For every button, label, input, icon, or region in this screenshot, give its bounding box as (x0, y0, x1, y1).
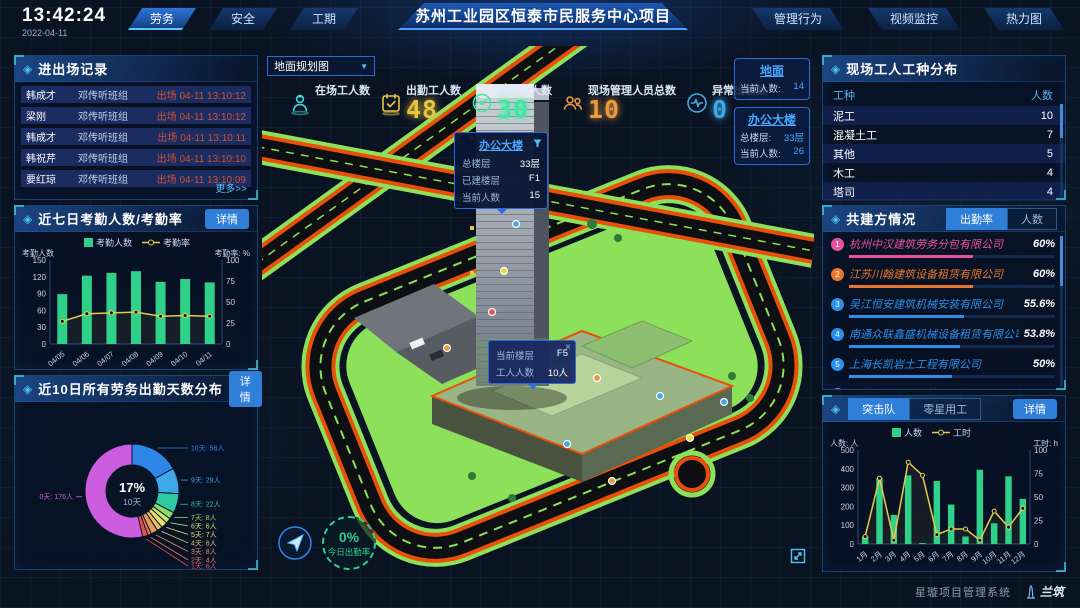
svg-text:2月: 2月 (869, 549, 884, 563)
entry-record-row: 韩成才邓传听班组出场 04-11 13:10:11 (21, 128, 251, 145)
worker-type-count: 4 (1023, 186, 1053, 198)
table-row: 其他5 (823, 144, 1065, 163)
svg-text:04/08: 04/08 (120, 349, 140, 368)
diamond-icon: ◈ (831, 212, 840, 226)
building-badge: 办公大楼总楼层:33层当前人数:26 (734, 107, 810, 165)
partner-progress-fill (849, 345, 960, 348)
nav-tab[interactable]: 工期 (290, 8, 358, 30)
entry-worker-name: 韩成才 (26, 129, 78, 144)
distribution-detail-button[interactable]: 详情 (229, 371, 262, 407)
squad-detail-button[interactable]: 详情 (1013, 399, 1057, 419)
tooltip-row: 工人人数10人 (496, 365, 568, 379)
worker-types-table-header: 工种 人数 (823, 82, 1065, 106)
badge-row-value: 26 (793, 146, 804, 160)
svg-text:6天: 6人: 6天: 6人 (191, 522, 217, 530)
scrollbar-thumb[interactable] (1060, 236, 1063, 286)
nav-tab[interactable]: 热力图 (984, 8, 1064, 30)
floor-tooltip-rows: 当前楼层F5工人人数10人 (496, 348, 568, 379)
scrollbar-thumb[interactable] (1060, 104, 1063, 138)
svg-text:60: 60 (37, 306, 46, 315)
svg-text:150: 150 (33, 256, 47, 265)
svg-text:04/05: 04/05 (46, 349, 66, 368)
entry-team-name: 邓传听班组 (78, 171, 157, 186)
nav-tabs-left: 劳务安全工期 (128, 8, 358, 30)
nav-tabs-right: 管理行为视频监控热力图 (752, 8, 1064, 30)
calendar-icon (379, 90, 403, 116)
partners-panel: ◈ 共建方情况 出勤率人数 1杭州中汉建筑劳务分包有限公司60%2江苏川翰建筑设… (822, 205, 1066, 390)
diamond-icon: ◈ (23, 212, 32, 226)
partner-progress-track (849, 285, 1055, 288)
badge-row-value: 14 (793, 81, 804, 95)
view-selector-value: 地面规划图 (274, 58, 329, 74)
table-row: 木工4 (823, 163, 1065, 182)
svg-text:8月: 8月 (955, 549, 970, 563)
worker-type-name: 混凝土工 (833, 127, 1023, 143)
partner-item[interactable]: 1杭州中汉建筑劳务分包有限公司60% (831, 236, 1055, 264)
partner-row: 4南通众联鑫盛机械设备租赁有限公司53.8% (831, 326, 1055, 342)
svg-text:4月: 4月 (898, 549, 913, 563)
distribution-donut-chart: 10天: 56人9天: 29人8天: 22人7天: 8人6天: 6人5天: 7人… (20, 403, 252, 569)
partner-rank-badge: 6 (831, 388, 844, 390)
entry-event-time: 出场 04-11 13:10:10 (157, 150, 246, 165)
site-stats-row: 在场工人数出勤工人数48现场工人数30现场管理人员总数10异常出勤数0 (288, 82, 767, 122)
svg-text:0: 0 (1034, 540, 1039, 549)
svg-text:0: 0 (42, 340, 47, 349)
tooltip-row: 当前人数15 (462, 190, 540, 204)
site-stat: 现场工人数30 (470, 82, 552, 122)
svg-text:考勤率: 考勤率 (163, 237, 190, 248)
entry-team-name: 邓传听班组 (78, 129, 157, 144)
nav-tab[interactable]: 安全 (209, 8, 277, 30)
entry-team-name: 邓传听班组 (78, 87, 157, 102)
building-badge-row: 当前人数:26 (740, 146, 804, 160)
column-count: 人数 (1023, 87, 1053, 103)
stat-value: 48 (406, 98, 461, 122)
entry-worker-name: 韩成才 (26, 87, 78, 102)
partners-tab[interactable]: 出勤率 (946, 208, 1007, 230)
brand-logo: 兰筑 (1025, 583, 1064, 600)
svg-text:6月: 6月 (926, 549, 941, 563)
partners-list: 1杭州中汉建筑劳务分包有限公司60%2江苏川翰建筑设备租赁有限公司60%3吴江恒… (823, 232, 1065, 389)
diamond-icon: ◈ (831, 402, 840, 416)
brand-logo-text: 兰筑 (1040, 583, 1064, 600)
svg-text:10天: 56人: 10天: 56人 (191, 445, 224, 453)
building-badge-row: 当前人数:14 (740, 81, 804, 95)
building-badges: 地面当前人数:14办公大楼总楼层:33层当前人数:26 (734, 58, 810, 165)
tower-tooltip-rows: 总楼层33层已建楼层F1当前人数15 (462, 156, 540, 204)
svg-text:0: 0 (226, 340, 231, 349)
entry-record-row: 梁刚邓传听班组出场 04-11 13:10:12 (21, 107, 251, 124)
today-attendance-rate-badge: 0% 今日出勤率 (322, 516, 376, 570)
svg-text:人数: 人数 (904, 427, 922, 438)
diamond-icon: ◈ (23, 382, 32, 396)
svg-text:100: 100 (226, 256, 240, 265)
partner-row: 2江苏川翰建筑设备租赁有限公司60% (831, 266, 1055, 282)
badge-row-value: 33层 (784, 130, 804, 144)
page-title: 苏州工业园区恒泰市民服务中心项目 (398, 3, 688, 30)
more-link[interactable]: 更多>> (215, 180, 247, 195)
svg-text:100: 100 (1034, 446, 1048, 455)
svg-text:工时: 工时 (953, 427, 971, 438)
svg-text:7天: 8人: 7天: 8人 (191, 514, 217, 522)
partner-value: 53.8% (1024, 328, 1055, 340)
svg-text:5天: 7人: 5天: 7人 (191, 531, 217, 539)
floor-tooltip: × 当前楼层F5工人人数10人 (488, 340, 576, 384)
table-row: 塔司4 (823, 182, 1065, 201)
diamond-icon: ◈ (831, 62, 840, 76)
partners-header: ◈ 共建方情况 出勤率人数 (823, 206, 1065, 232)
svg-text:1天: 6人: 1天: 6人 (191, 563, 217, 570)
partner-progress-track (849, 345, 1055, 348)
tooltip-row-value: 33层 (520, 156, 540, 170)
svg-text:120: 120 (33, 273, 47, 282)
entry-worker-name: 要红琼 (26, 171, 78, 186)
partner-row: 6江苏浩诒建筑安装工程有限公司35.4% (831, 386, 1055, 389)
clock: 13:42:24 2022-04-11 (22, 5, 106, 38)
worker-type-name: 泥工 (833, 108, 1023, 124)
worker-type-count: 5 (1023, 148, 1053, 160)
partners-tab[interactable]: 人数 (1007, 208, 1057, 230)
table-row: 混凝土工7 (823, 125, 1065, 144)
tooltip-row-label: 工人人数 (496, 365, 534, 379)
tooltip-row-value: 15 (529, 190, 540, 204)
people-icon (561, 90, 585, 116)
entry-exit-title: 进出场记录 (38, 59, 108, 78)
tooltip-row: 总楼层33层 (462, 156, 540, 170)
entry-exit-panel: ◈ 进出场记录 韩成才邓传听班组出场 04-11 13:10:12梁刚邓传听班组… (14, 55, 258, 200)
svg-text:50: 50 (1034, 493, 1043, 502)
partner-progress-fill (849, 285, 973, 288)
svg-text:200: 200 (841, 502, 855, 511)
partner-rank-badge: 3 (831, 298, 844, 311)
attendance-panel: ◈ 近七日考勤人数/考勤率 详情 考勤人数考勤率考勤人数考勤率: %030609… (14, 205, 258, 370)
partner-progress-track (849, 255, 1055, 258)
attendance-rate-percent: 0% (339, 529, 359, 545)
svg-text:4天: 6人: 4天: 6人 (191, 539, 217, 547)
partner-progress-fill (849, 375, 952, 378)
svg-text:5月: 5月 (912, 549, 927, 563)
tower-tooltip: 办公大楼 总楼层33层已建楼层F1当前人数15 (454, 132, 548, 209)
table-row: 泥工10 (823, 106, 1065, 125)
stat-text: 在场工人数 (315, 82, 370, 122)
svg-text:30: 30 (37, 323, 46, 332)
entry-team-name: 邓传听班组 (78, 108, 157, 123)
partner-progress-track (849, 375, 1055, 378)
view-selector-dropdown[interactable]: 地面规划图 ▼ (267, 56, 375, 76)
svg-text:400: 400 (841, 465, 855, 474)
stat-text: 现场工人数30 (497, 82, 552, 122)
entry-event-time: 出场 04-11 13:10:12 (157, 87, 246, 102)
stat-value: 30 (497, 98, 552, 122)
svg-text:50: 50 (226, 298, 235, 307)
svg-text:90: 90 (37, 290, 46, 299)
svg-text:100: 100 (841, 521, 855, 530)
svg-text:12月: 12月 (1009, 549, 1027, 566)
partner-progress-track (849, 315, 1055, 318)
building-badge: 地面当前人数:14 (734, 58, 810, 100)
entry-team-name: 邓传听班组 (78, 150, 157, 165)
entry-record-row: 韩祝芹邓传听班组出场 04-11 13:10:10 (21, 149, 251, 166)
worker-type-count: 10 (1023, 110, 1053, 122)
svg-text:8天: 22人: 8天: 22人 (191, 501, 221, 509)
svg-text:75: 75 (226, 277, 235, 286)
attendance-detail-button[interactable]: 详情 (205, 209, 249, 229)
tooltip-row-value: F1 (529, 173, 540, 187)
svg-text:7月: 7月 (941, 549, 956, 563)
squad-chart: 人数工时人数: 人工时: h01002003004005000255075100… (828, 424, 1060, 570)
distribution-panel: ◈ 近10日所有劳务出勤天数分布 详情 10天: 56人9天: 29人8天: 2… (14, 375, 258, 570)
svg-text:9天: 29人: 9天: 29人 (191, 477, 221, 485)
partner-item[interactable]: 6江苏浩诒建筑安装工程有限公司35.4% (831, 386, 1055, 389)
partner-value: 35.4% (1024, 388, 1055, 389)
tooltip-row: 当前楼层F5 (496, 348, 568, 362)
worker-types-title: 现场工人工种分布 (846, 59, 958, 78)
tooltip-row-value: 10人 (548, 365, 568, 379)
partner-value: 60% (1033, 238, 1055, 250)
site-view-container: 地面规划图 ▼ 在场工人数出勤工人数48现场工人数30现场管理人员总数10异常出… (262, 46, 814, 574)
entry-worker-name: 梁刚 (26, 108, 78, 123)
partner-row: 1杭州中汉建筑劳务分包有限公司60% (831, 236, 1055, 252)
system-name: 星璇项目管理系统 (915, 584, 1011, 600)
worker-type-count: 7 (1023, 129, 1053, 141)
partner-value: 55.6% (1024, 298, 1055, 310)
svg-text:04/10: 04/10 (169, 349, 189, 368)
entry-event-time: 出场 04-11 13:10:11 (157, 129, 246, 144)
tooltip-row-label: 已建楼层 (462, 173, 500, 187)
partner-rank-badge: 4 (831, 328, 844, 341)
entry-worker-name: 韩祝芹 (26, 150, 78, 165)
nav-tab[interactable]: 管理行为 (752, 8, 844, 30)
nav-tab[interactable]: 劳务 (128, 8, 196, 30)
attendance-chart: 考勤人数考勤率考勤人数考勤率: %03060901201500255075100… (20, 234, 252, 370)
partner-progress-fill (849, 315, 964, 318)
stat-text: 出勤工人数48 (406, 82, 461, 122)
building-badge-title[interactable]: 地面 (740, 62, 804, 79)
squad-header: ◈ 突击队零星用工 详情 (823, 396, 1065, 422)
partner-name: 江苏浩诒建筑安装工程有限公司 (849, 386, 1019, 389)
top-header: 13:42:24 2022-04-11 劳务安全工期 苏州工业园区恒泰市民服务中… (0, 0, 1080, 40)
current-date: 2022-04-11 (22, 28, 106, 38)
svg-text:3天: 8人: 3天: 8人 (191, 548, 217, 556)
site-stat: 出勤工人数48 (379, 82, 461, 122)
entry-event-time: 出场 04-11 13:10:12 (157, 108, 246, 123)
partners-tabs: 出勤率人数 (946, 208, 1057, 230)
partner-name: 上海长凯岩土工程有限公司 (849, 356, 1028, 372)
close-icon[interactable]: × (565, 342, 571, 353)
tower-tooltip-title[interactable]: 办公大楼 (462, 137, 540, 153)
nav-tab[interactable]: 视频监控 (868, 8, 960, 30)
svg-text:75: 75 (1034, 470, 1043, 479)
worker-type-name: 木工 (833, 165, 1023, 181)
worker-type-name: 塔司 (833, 184, 1023, 200)
distribution-title: 近10日所有劳务出勤天数分布 (38, 379, 222, 398)
partner-progress-fill (849, 255, 973, 258)
svg-text:04/11: 04/11 (194, 349, 214, 367)
stat-text: 现场管理人员总数10 (588, 82, 676, 122)
badge-row-label: 当前人数: (740, 146, 781, 160)
tooltip-row-label: 总楼层 (462, 156, 491, 170)
site-3d-view[interactable] (262, 46, 814, 574)
worker-type-name: 其他 (833, 146, 1023, 162)
stat-label: 在场工人数 (315, 82, 370, 98)
svg-text:3月: 3月 (883, 549, 898, 563)
site-stat: 现场管理人员总数10 (561, 82, 676, 122)
squad-tab[interactable]: 零星用工 (909, 398, 981, 420)
partner-rank-badge: 2 (831, 268, 844, 281)
pulse-icon (685, 90, 709, 116)
badge-row-label: 当前人数: (740, 81, 781, 95)
chevron-down-icon: ▼ (360, 62, 368, 71)
footer: 星璇项目管理系统 兰筑 (915, 583, 1064, 600)
svg-text:04/07: 04/07 (95, 349, 115, 368)
worker-types-panel: ◈ 现场工人工种分布 工种 人数 泥工10混凝土工7其他5木工4塔司4 (822, 55, 1066, 200)
stat-value: 10 (588, 98, 676, 122)
svg-text:25: 25 (1034, 517, 1043, 526)
entry-exit-list: 韩成才邓传听班组出场 04-11 13:10:12梁刚邓传听班组出场 04-11… (15, 86, 257, 187)
svg-text:0: 0 (850, 540, 855, 549)
partner-value: 60% (1033, 268, 1055, 280)
tower-logo-icon (1025, 585, 1037, 599)
fullscreen-icon[interactable] (790, 548, 806, 564)
building-badge-title[interactable]: 办公大楼 (740, 111, 804, 128)
stat-value (315, 98, 370, 122)
attendance-header: ◈ 近七日考勤人数/考勤率 详情 (15, 206, 257, 232)
svg-text:1月: 1月 (855, 549, 870, 563)
svg-text:10天: 10天 (123, 497, 141, 507)
partner-rank-badge: 1 (831, 238, 844, 251)
svg-text:考勤人数: 考勤人数 (96, 237, 132, 248)
svg-text:04/09: 04/09 (144, 349, 164, 368)
squad-tabs: 突击队零星用工 (848, 398, 981, 420)
squad-panel: ◈ 突击队零星用工 详情 人数工时人数: 人工时: h0100200300400… (822, 395, 1066, 572)
worker-type-count: 4 (1023, 167, 1053, 179)
worker-types-table: 泥工10混凝土工7其他5木工4塔司4 (823, 106, 1065, 201)
tooltip-row-label: 当前楼层 (496, 348, 534, 362)
entry-exit-header: ◈ 进出场记录 (15, 56, 257, 82)
squad-tab[interactable]: 突击队 (848, 398, 909, 420)
site-stat: 在场工人数 (288, 82, 370, 122)
svg-text:04/06: 04/06 (71, 349, 91, 368)
partner-name: 吴江恒安建筑机械安装有限公司 (849, 296, 1019, 312)
entry-record-row: 韩成才邓传听班组出场 04-11 13:10:12 (21, 86, 251, 103)
partner-rank-badge: 5 (831, 358, 844, 371)
partner-name: 南通众联鑫盛机械设备租赁有限公司 (849, 326, 1019, 342)
worker-icon (288, 90, 312, 116)
partner-item[interactable]: 2江苏川翰建筑设备租赁有限公司60% (831, 266, 1055, 294)
partner-value: 50% (1033, 358, 1055, 370)
attendance-rate-label: 今日出勤率 (328, 546, 371, 558)
partner-item[interactable]: 5上海长凯岩土工程有限公司50% (831, 356, 1055, 384)
partner-row: 3吴江恒安建筑机械安装有限公司55.6% (831, 296, 1055, 312)
partner-item[interactable]: 4南通众联鑫盛机械设备租赁有限公司53.8% (831, 326, 1055, 354)
partner-name: 杭州中汉建筑劳务分包有限公司 (849, 236, 1028, 252)
svg-text:25: 25 (226, 319, 235, 328)
svg-text:17%: 17% (119, 480, 145, 495)
svg-text:500: 500 (841, 446, 855, 455)
building-badge-row: 总楼层:33层 (740, 130, 804, 144)
badge-row-label: 总楼层: (740, 130, 771, 144)
distribution-header: ◈ 近10日所有劳务出勤天数分布 详情 (15, 376, 257, 402)
partner-item[interactable]: 3吴江恒安建筑机械安装有限公司55.6% (831, 296, 1055, 324)
partner-name: 江苏川翰建筑设备租赁有限公司 (849, 266, 1028, 282)
svg-text:0天: 176人: 0天: 176人 (40, 493, 73, 501)
current-time: 13:42:24 (22, 5, 106, 27)
tooltip-row: 已建楼层F1 (462, 173, 540, 187)
filter-icon[interactable] (533, 139, 542, 148)
tooltip-row-label: 当前人数 (462, 190, 500, 204)
compass-button[interactable] (276, 524, 314, 562)
column-type: 工种 (833, 87, 1023, 103)
attendance-title: 近七日考勤人数/考勤率 (38, 209, 183, 228)
diamond-icon: ◈ (23, 62, 32, 76)
worker-types-header: ◈ 现场工人工种分布 (823, 56, 1065, 82)
svg-text:300: 300 (841, 484, 855, 493)
partner-row: 5上海长凯岩土工程有限公司50% (831, 356, 1055, 372)
partners-title: 共建方情况 (846, 209, 916, 228)
gauge-icon (470, 90, 494, 116)
